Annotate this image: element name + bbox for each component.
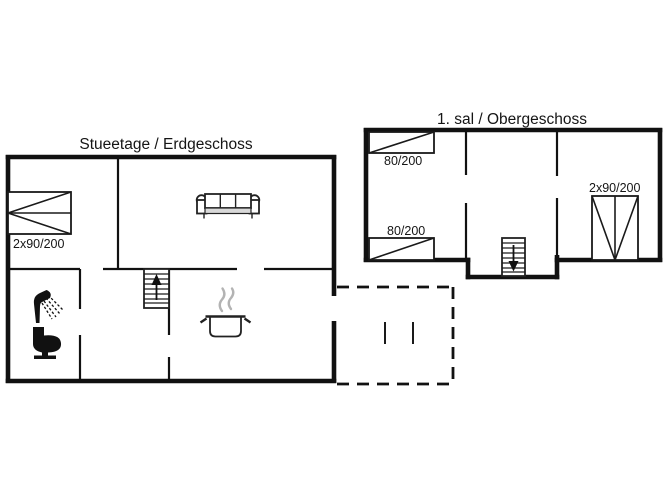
upper-bed-top-label: 80/200 <box>384 154 422 168</box>
upper-double-bed-label: 2x90/200 <box>589 181 640 195</box>
ground-floor-plan: Stueetage / Erdgeschoss 2x90/200 <box>6 136 337 383</box>
single-bed-top-icon <box>369 132 434 153</box>
upper-bed-bottom-label: 80/200 <box>387 224 425 238</box>
upper-floor-title: 1. sal / Obergeschoss <box>437 111 587 128</box>
double-bed-icon <box>8 192 71 234</box>
floor-plan-canvas: Stueetage / Erdgeschoss 2x90/200 <box>0 0 667 500</box>
single-bed-bottom-icon <box>369 238 434 260</box>
toilet-icon <box>33 327 61 359</box>
upper-double-bed-icon <box>592 196 638 260</box>
cooking-pot-icon <box>201 289 251 337</box>
shower-icon <box>34 290 63 323</box>
floor-plan-drawing: Stueetage / Erdgeschoss 2x90/200 <box>0 0 667 500</box>
upper-floor-plan: 1. sal / Obergeschoss 80/200 80/200 <box>364 111 663 279</box>
ground-bed-size-label: 2x90/200 <box>13 237 64 251</box>
terrace-outline <box>337 287 453 384</box>
ground-floor-title: Stueetage / Erdgeschoss <box>79 136 252 153</box>
stairs-down-icon <box>502 238 525 276</box>
sofa-icon <box>197 194 260 219</box>
stairs-up-icon <box>144 269 169 308</box>
